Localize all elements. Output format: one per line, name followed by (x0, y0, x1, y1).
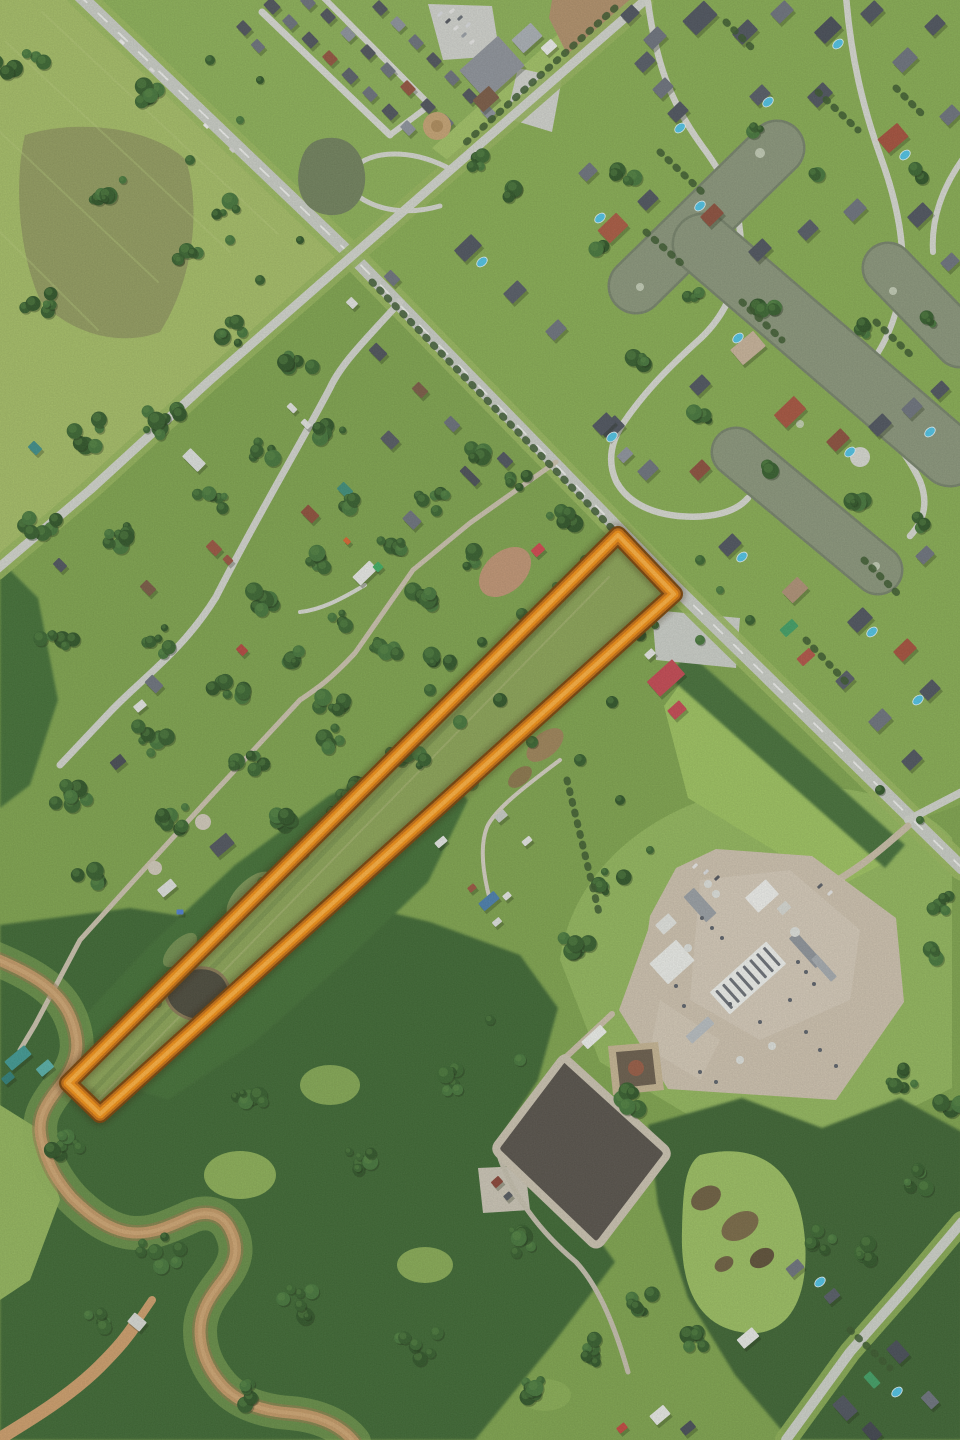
grain-light (0, 0, 960, 1440)
satellite-map (0, 0, 960, 1440)
satellite-map-canvas (0, 0, 960, 1440)
noise-overlay (0, 0, 960, 1440)
